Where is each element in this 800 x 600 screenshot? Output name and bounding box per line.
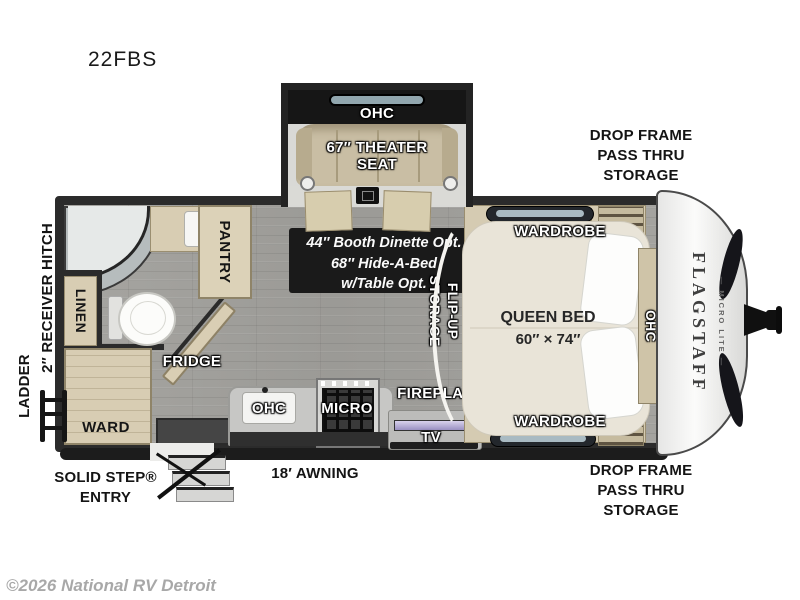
bedroom-window-bottom-glass: [500, 435, 586, 442]
hitch-pin: [776, 306, 782, 334]
ladder-label: LADDER: [15, 316, 33, 456]
wardrobe-top-label: WARDROBE: [490, 223, 630, 240]
drop-frame-top-label: DROP FRAME PASS THRU STORAGE: [566, 126, 716, 185]
drop-frame-bottom-line1: DROP FRAME: [566, 461, 716, 481]
pantry-label: PANTRY: [217, 206, 233, 298]
copyright-watermark: ©2026 National RV Detroit: [6, 576, 216, 596]
solid-step-line2: ENTRY: [38, 488, 173, 508]
receiver-hitch-label: 2″ RECEIVER HITCH: [38, 203, 56, 393]
ottoman-left: [304, 190, 352, 232]
drop-frame-bottom-line3: STORAGE: [566, 501, 716, 521]
solid-step-label: SOLID STEP® ENTRY: [38, 468, 173, 508]
tv-label: TV: [406, 429, 456, 446]
theater-seat-label-line2: SEAT: [302, 156, 452, 173]
cupholder-icon: [443, 176, 458, 191]
queen-bed-label: QUEEN BED: [468, 309, 628, 327]
range-knobs: [321, 381, 375, 386]
wardrobe-bottom-label: WARDROBE: [490, 413, 630, 430]
kitchen-ohc-label: OHC: [244, 400, 294, 417]
step-tread: [176, 487, 234, 502]
console-button-icon: [362, 191, 374, 201]
brand-sub-logo: — MICRO LITE —: [714, 252, 726, 392]
fridge-label: FRIDGE: [142, 353, 242, 370]
bedroom-window-top-glass: [496, 210, 584, 217]
micro-label: MICRO: [317, 400, 377, 417]
drop-frame-top-line3: STORAGE: [566, 166, 716, 186]
drop-frame-top-line1: DROP FRAME: [566, 126, 716, 146]
model-title: 22FBS: [88, 48, 157, 72]
ladder-rung-icon: [40, 412, 67, 416]
ladder-rung-icon: [40, 426, 67, 430]
ladder-rung-icon: [40, 398, 67, 402]
floorplan-diagram: 22FBS LINEN PANTRY WARD FRIDGE OHC MICRO…: [0, 0, 800, 600]
theater-seat-label-line1: 67″ THEATER: [302, 139, 452, 156]
solid-step-line1: SOLID STEP®: [38, 468, 173, 488]
drop-frame-top-line2: PASS THRU: [566, 146, 716, 166]
toilet-bowl: [130, 301, 166, 335]
drop-frame-bottom-line2: PASS THRU: [566, 481, 716, 501]
linen-label: LINEN: [73, 276, 89, 346]
queen-bed-size-label: 60″ × 74″: [468, 331, 628, 348]
drop-frame-bottom-label: DROP FRAME PASS THRU STORAGE: [566, 461, 716, 520]
ward-label: WARD: [66, 419, 146, 436]
slideout-ohc-label: OHC: [352, 105, 402, 122]
awning-label: 18′ AWNING: [245, 464, 385, 484]
entry-mat: [156, 418, 230, 445]
cupholder-icon: [300, 176, 315, 191]
ottoman-right: [382, 190, 431, 232]
brand-logo: FLAGSTAFF: [691, 252, 709, 392]
kitchen-faucet-icon: [262, 387, 268, 393]
